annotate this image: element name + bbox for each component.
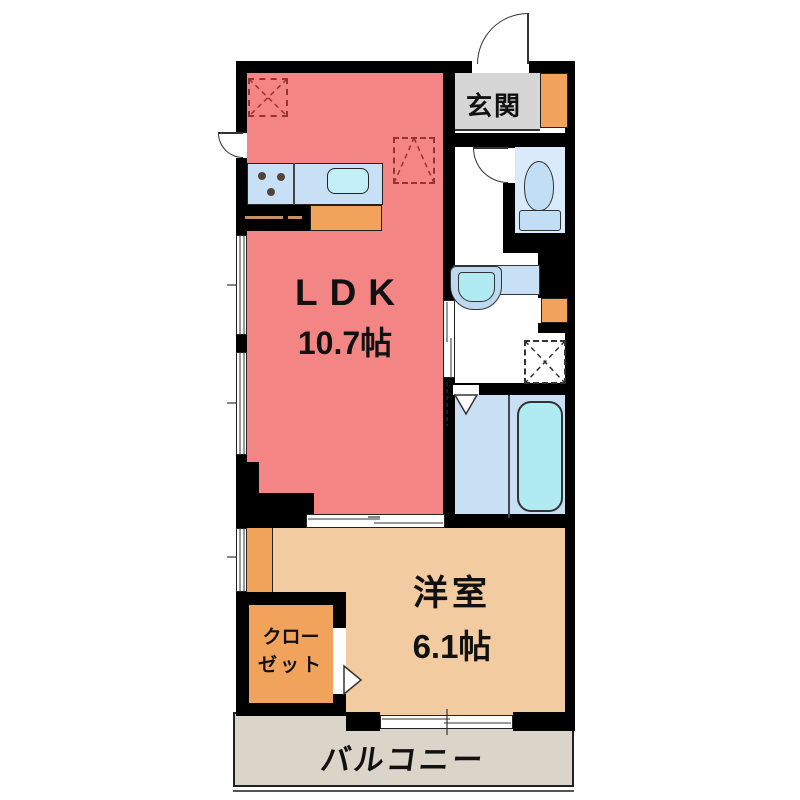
ldk-label: LDK bbox=[245, 272, 445, 314]
ldk-area-label: 10.7帖 bbox=[245, 318, 445, 364]
ldk-western-sliding-door bbox=[306, 514, 445, 528]
wall-wash-right bbox=[538, 253, 575, 298]
wall-ldk-bottom-left bbox=[236, 514, 306, 528]
refrigerator-space bbox=[393, 137, 435, 184]
stove-burner-3 bbox=[267, 188, 275, 196]
wall-bottom-left-of-window bbox=[346, 712, 380, 731]
washbasin-bowl-inner bbox=[458, 272, 495, 302]
toilet-tank bbox=[519, 210, 561, 231]
wall-notch-horiz bbox=[259, 493, 314, 514]
bath-door-opening bbox=[453, 385, 479, 395]
kitchen-lower-line-2 bbox=[288, 216, 302, 219]
shoe-cabinet bbox=[540, 73, 568, 128]
kitchen-lower-line-1 bbox=[245, 216, 283, 219]
floor-plan-canvas: 玄関 LDK 10.7帖 洋室 6.1帖 クロー ゼット バルコニー bbox=[0, 0, 800, 800]
stove-burner-1 bbox=[258, 172, 266, 180]
ldk-window-2 bbox=[236, 352, 247, 455]
entrance-door-arc bbox=[477, 13, 528, 64]
wall-under-entrance bbox=[443, 133, 575, 147]
wall-left-1 bbox=[236, 61, 247, 133]
bathroom-divider bbox=[508, 395, 510, 518]
wall-bath-left bbox=[443, 395, 455, 528]
washing-machine-space bbox=[524, 340, 566, 384]
wall-under-toilet bbox=[503, 233, 575, 253]
kitchen-lower-cabinet bbox=[310, 205, 382, 231]
wall-notch-vert bbox=[236, 462, 259, 514]
ldk-dashed-box bbox=[248, 78, 288, 117]
western-balcony-window bbox=[380, 715, 513, 729]
balcony-label: バルコニー bbox=[230, 735, 577, 779]
western-room-label: 洋室 bbox=[337, 565, 567, 616]
bathtub bbox=[517, 401, 563, 512]
closet-label-line1: クロー bbox=[249, 622, 333, 649]
wall-ldk-bottom-right bbox=[445, 514, 575, 528]
western-room-area-label: 6.1帖 bbox=[337, 620, 567, 668]
storage-cabinet bbox=[541, 298, 568, 323]
western-storage-strip bbox=[247, 528, 273, 592]
kitchen-counter-divider bbox=[293, 163, 295, 205]
stove-burner-2 bbox=[277, 173, 285, 181]
balcony-outer-line bbox=[233, 790, 574, 792]
closet-label-line2: ゼット bbox=[249, 650, 333, 677]
entrance-label: 玄関 bbox=[447, 86, 541, 123]
toilet-bowl bbox=[524, 161, 554, 211]
kitchen-door-arc bbox=[218, 133, 243, 158]
kitchen-sink bbox=[327, 168, 369, 194]
toilet-door-arc bbox=[473, 148, 508, 183]
wall-bottom-right-of-window bbox=[513, 712, 575, 731]
western-window-left bbox=[236, 528, 247, 592]
wall-under-storage bbox=[538, 323, 575, 333]
